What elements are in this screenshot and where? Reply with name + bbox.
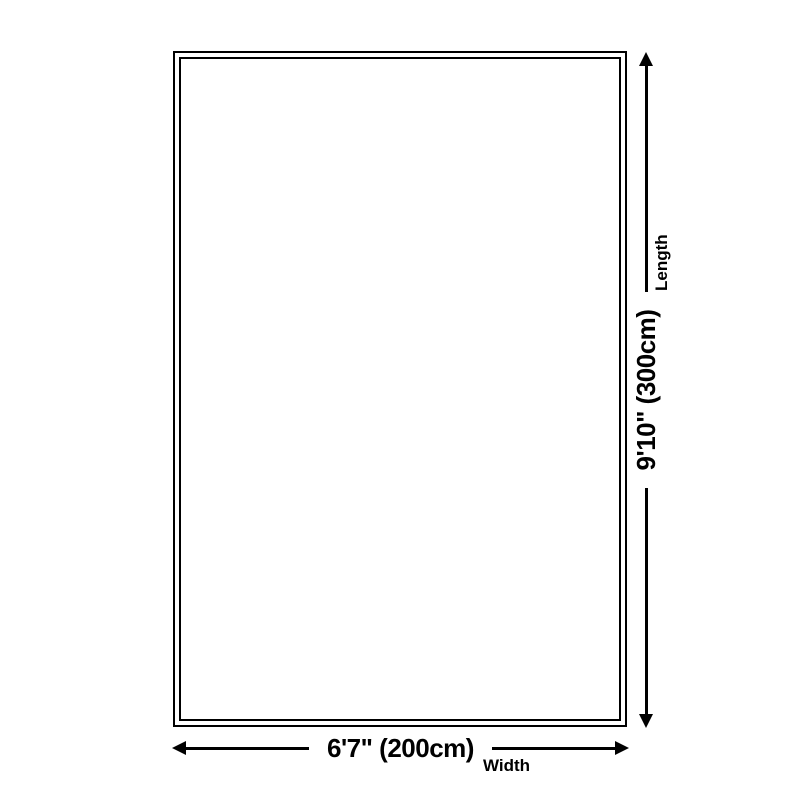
arrow-down-icon <box>639 714 653 728</box>
width-dimension-line-right <box>492 747 615 750</box>
width-dimension-value: 6'7" (200cm) <box>327 735 474 761</box>
arrow-left-icon <box>172 741 186 755</box>
rug-dimension-diagram: 9'10" (300cm) Length 6'7" (200cm) Width <box>0 0 800 800</box>
arrow-right-icon <box>615 741 629 755</box>
length-dimension-value: 9'10" (300cm) <box>633 310 659 471</box>
length-dimension-line-lower <box>645 488 648 714</box>
rug-inner-border <box>179 57 621 721</box>
width-dimension-line-left <box>186 747 309 750</box>
width-dimension-label: Width <box>483 757 530 774</box>
width-dimension: 6'7" (200cm) Width <box>172 733 629 763</box>
length-dimension: 9'10" (300cm) Length <box>631 52 661 728</box>
length-dimension-line-upper <box>645 66 648 292</box>
arrow-up-icon <box>639 52 653 66</box>
length-dimension-label: Length <box>653 234 670 291</box>
rug-outline <box>173 51 627 727</box>
